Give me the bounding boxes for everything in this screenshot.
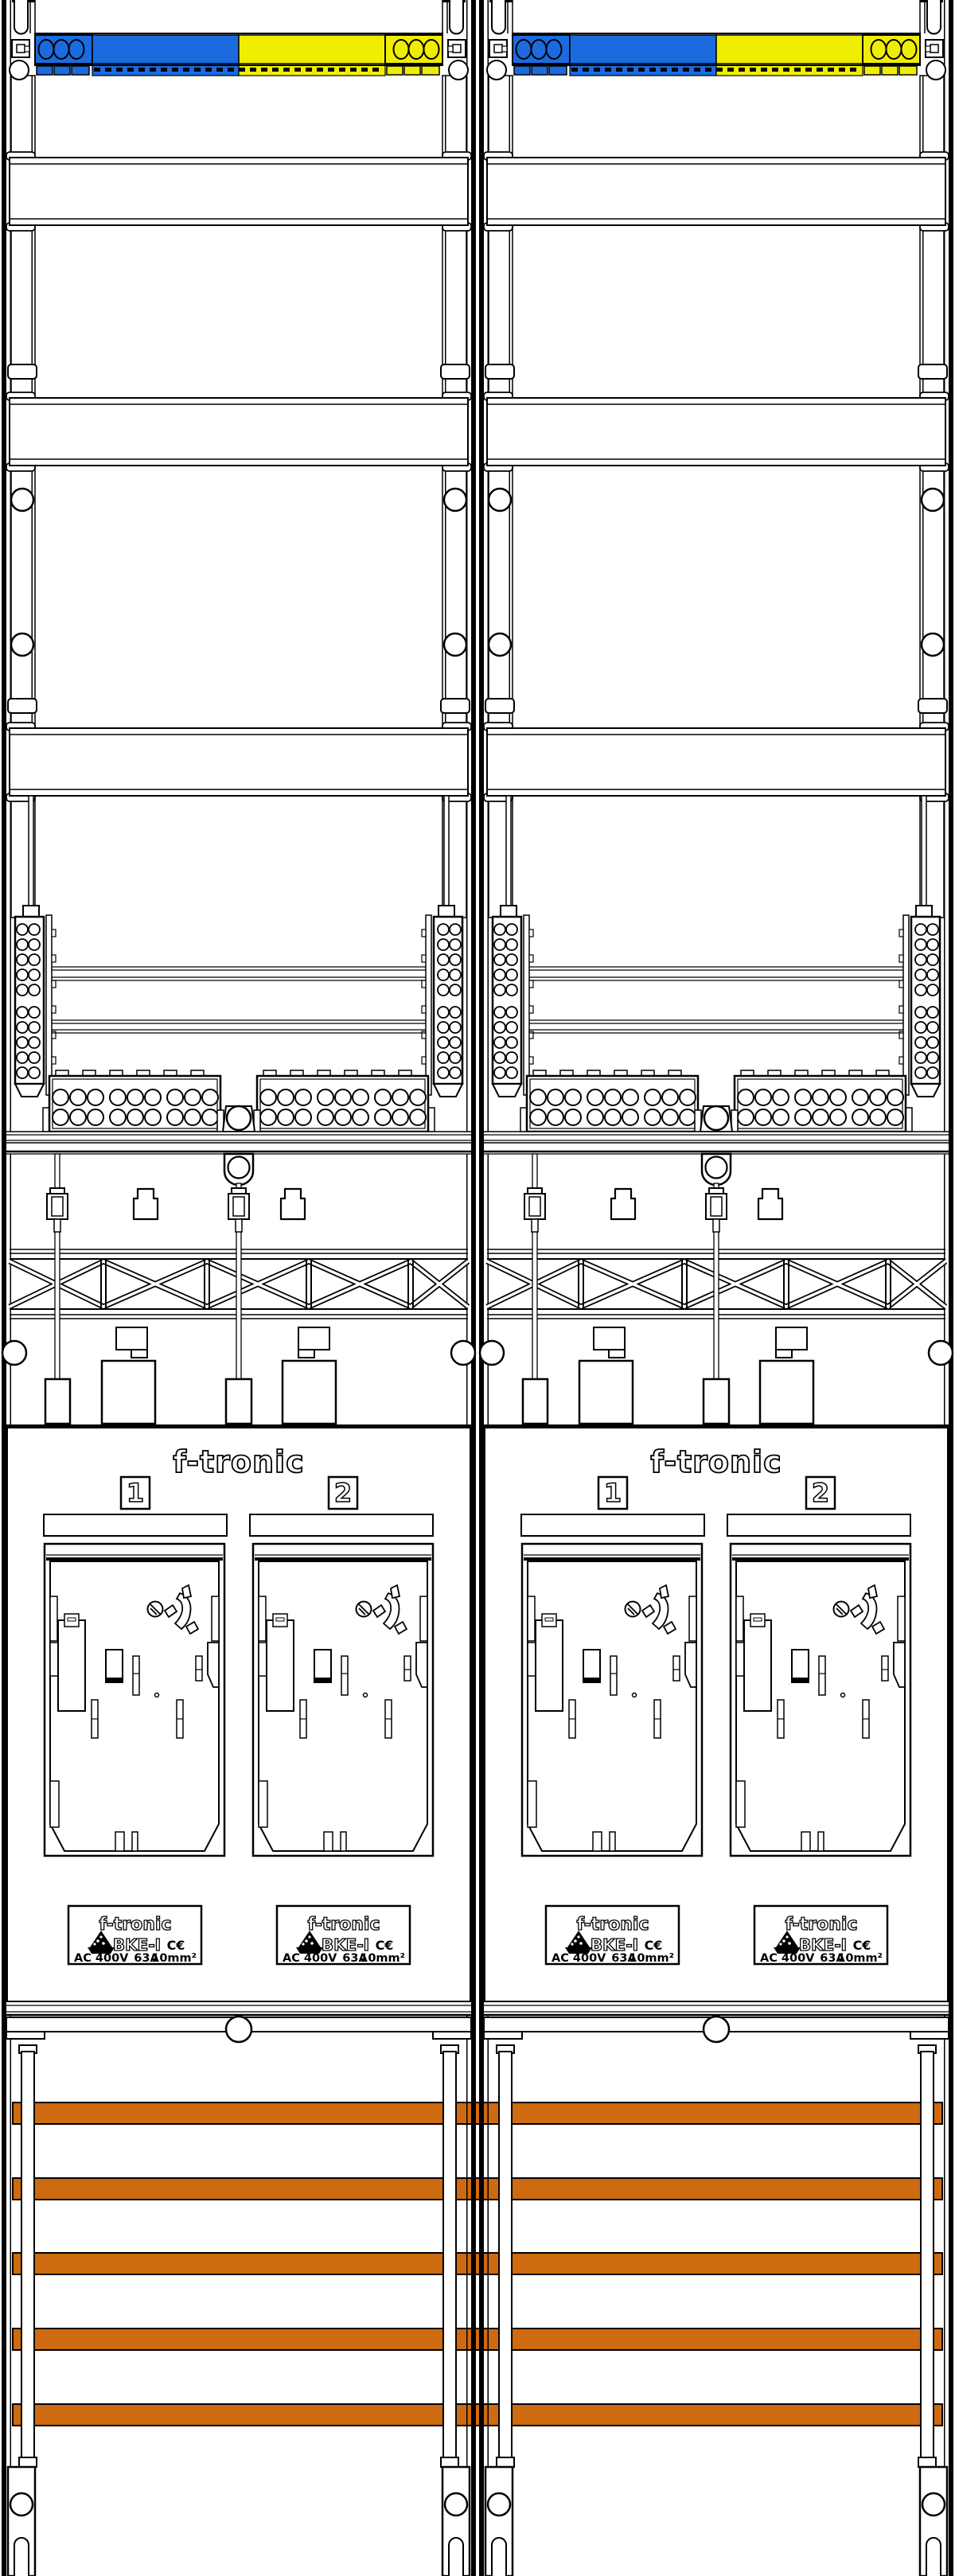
meter-cabinet-drawing: f-tronic BKE-I C€ AC 400V 63A 10mm²: [0, 0, 955, 2576]
busbar-5: [13, 2404, 942, 2426]
busbar-4: [13, 2329, 942, 2350]
busbar-1: [13, 2102, 942, 2124]
busbar-3: [13, 2253, 942, 2274]
cabinet-schematic: f-tronic BKE-I C€ AC 400V 63A 10mm²: [0, 0, 955, 2576]
busbar-2: [13, 2178, 942, 2200]
busbar-group: [13, 2102, 942, 2426]
